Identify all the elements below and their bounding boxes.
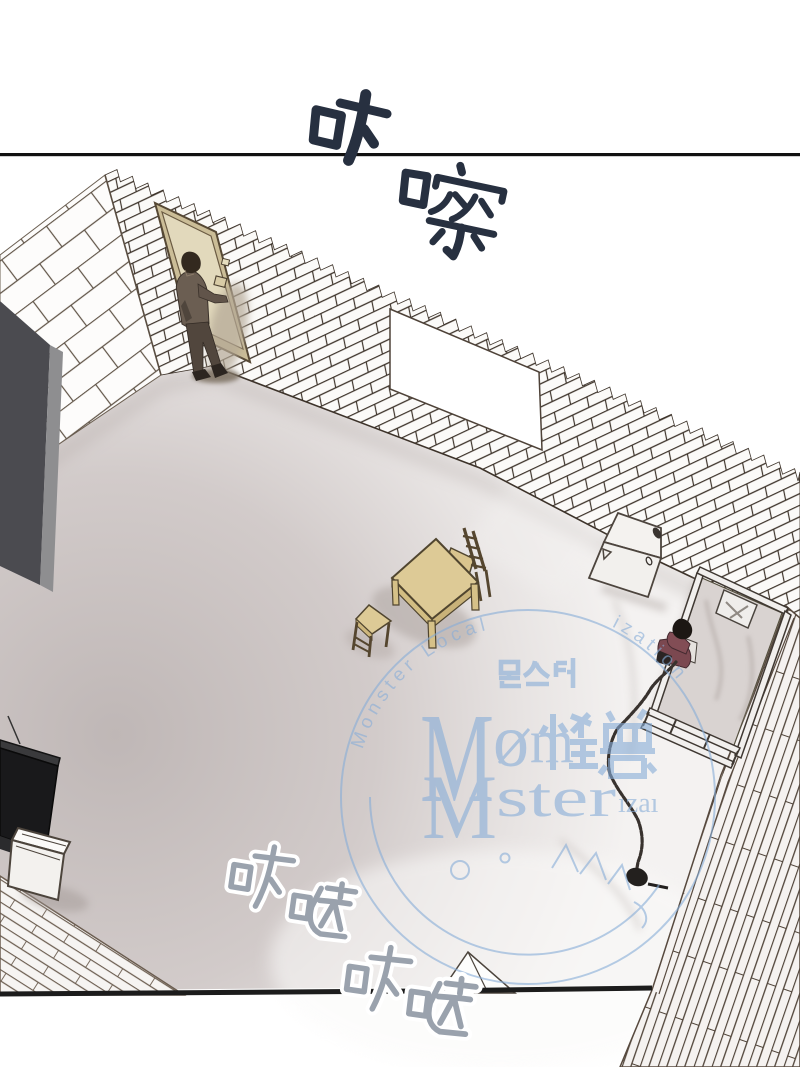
- svg-text:ster: ster: [496, 767, 617, 829]
- svg-text:ızaı: ızaı: [618, 788, 659, 819]
- svg-text:M: M: [422, 756, 497, 858]
